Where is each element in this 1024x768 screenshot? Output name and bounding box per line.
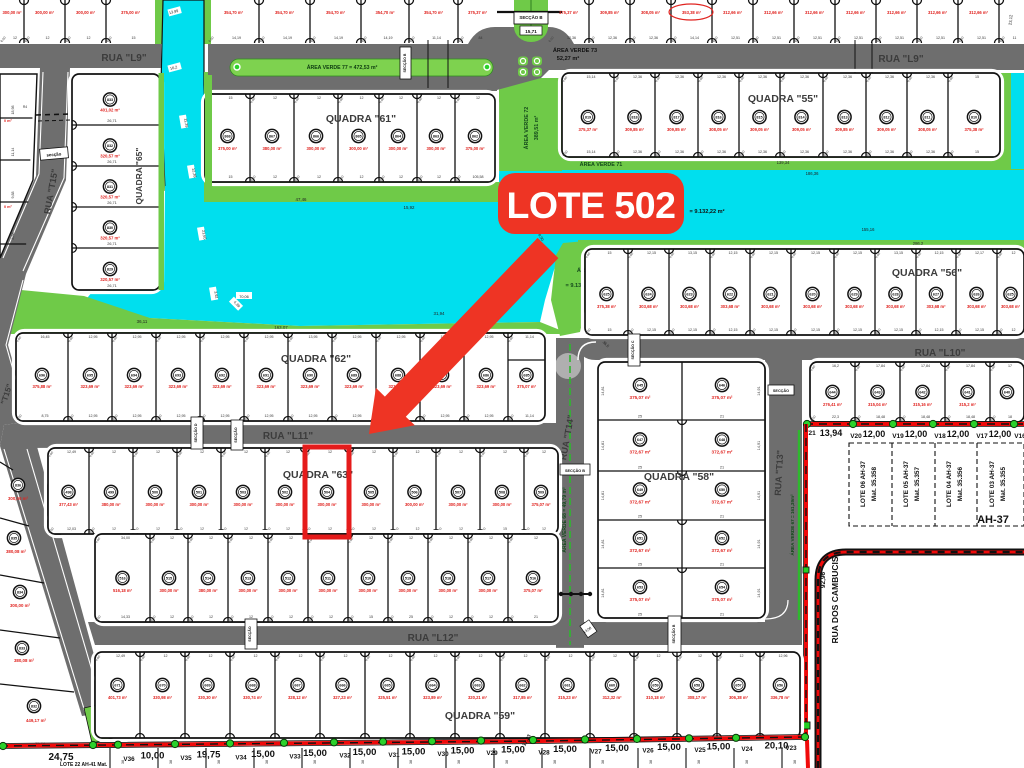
svg-text:8,75: 8,75	[42, 414, 49, 418]
svg-text:671: 671	[114, 684, 120, 688]
svg-text:SECÇÃO: SECÇÃO	[773, 388, 789, 393]
svg-text:300,00 m²: 300,00 m²	[405, 502, 425, 507]
svg-text:LOTE 03 AH-37: LOTE 03 AH-37	[989, 461, 996, 507]
svg-text:354,70 m²: 354,70 m²	[275, 10, 295, 15]
svg-text:621: 621	[767, 293, 773, 297]
svg-text:12,00: 12,00	[989, 429, 1012, 439]
svg-text:12: 12	[249, 536, 253, 540]
svg-text:36,11: 36,11	[137, 319, 148, 324]
svg-text:9,88: 9,88	[11, 192, 15, 199]
svg-text:21: 21	[720, 515, 724, 519]
svg-text:12: 12	[1012, 251, 1016, 255]
svg-text:V17: V17	[976, 433, 988, 440]
svg-text:810: 810	[971, 116, 977, 120]
svg-text:38: 38	[793, 760, 797, 764]
svg-text:14,19: 14,19	[334, 36, 343, 40]
svg-text:300,00 m²: 300,00 m²	[238, 588, 258, 593]
svg-text:836: 836	[15, 484, 21, 488]
svg-text:12: 12	[329, 615, 333, 619]
svg-text:17,84: 17,84	[966, 364, 975, 368]
svg-text:12,36: 12,36	[567, 36, 576, 40]
svg-text:18: 18	[1008, 415, 1012, 419]
svg-text:12: 12	[13, 36, 17, 40]
svg-text:309,85 m²: 309,85 m²	[835, 127, 855, 132]
svg-text:14,91: 14,91	[757, 539, 761, 549]
svg-text:12: 12	[542, 450, 546, 454]
svg-text:372,67 m²: 372,67 m²	[712, 450, 733, 455]
svg-text:507: 507	[455, 491, 461, 495]
svg-text:84: 84	[479, 36, 483, 40]
svg-text:690: 690	[307, 374, 313, 378]
svg-text:309,85 m²: 309,85 m²	[600, 10, 620, 15]
svg-text:22,3: 22,3	[832, 415, 839, 419]
svg-text:12,00: 12,00	[905, 429, 928, 439]
svg-text:868: 868	[224, 135, 230, 139]
svg-text:688: 688	[395, 374, 401, 378]
svg-text:12,95: 12,95	[133, 335, 142, 339]
svg-text:14,81: 14,81	[601, 588, 605, 598]
svg-text:12: 12	[46, 36, 50, 40]
svg-text:12,36: 12,36	[675, 150, 684, 154]
svg-text:662: 662	[519, 684, 525, 688]
svg-text:21: 21	[720, 613, 724, 617]
svg-text:502: 502	[282, 491, 288, 495]
svg-text:641: 641	[964, 391, 970, 395]
svg-text:819: 819	[585, 116, 591, 120]
svg-text:26,71: 26,71	[107, 119, 117, 123]
svg-text:670: 670	[159, 684, 165, 688]
svg-text:Mat. 35.355: Mat. 35.355	[1000, 467, 1007, 502]
svg-text:12,51: 12,51	[731, 36, 740, 40]
svg-text:831: 831	[107, 185, 113, 189]
svg-text:12,15: 12,15	[769, 251, 778, 255]
svg-text:12: 12	[289, 615, 293, 619]
svg-text:12,36: 12,36	[926, 75, 935, 79]
svg-text:12: 12	[200, 450, 204, 454]
svg-text:12,95: 12,95	[353, 414, 362, 418]
svg-text:QUADRA "65": QUADRA "65"	[134, 148, 144, 205]
svg-text:38: 38	[409, 760, 413, 764]
svg-text:12: 12	[156, 450, 160, 454]
svg-text:12,95: 12,95	[485, 335, 494, 339]
svg-text:303,68 m²: 303,68 m²	[761, 304, 781, 309]
svg-text:V18: V18	[934, 433, 946, 440]
svg-text:15,71: 15,71	[525, 29, 537, 34]
svg-text:865: 865	[355, 135, 361, 139]
svg-text:12,95: 12,95	[441, 414, 450, 418]
svg-text:300,00 m²: 300,00 m²	[388, 146, 408, 151]
svg-text:38: 38	[457, 760, 461, 764]
svg-text:449,17 m²: 449,17 m²	[26, 718, 47, 723]
svg-text:354,70 m²: 354,70 m²	[326, 10, 346, 15]
svg-text:11,14: 11,14	[525, 335, 534, 339]
svg-text:300,00 m²: 300,00 m²	[478, 588, 498, 593]
svg-text:353,38 m²: 353,38 m²	[682, 10, 702, 15]
svg-text:375,00 m²: 375,00 m²	[218, 146, 238, 151]
svg-text:12,15: 12,15	[853, 328, 862, 332]
svg-text:372,67 m²: 372,67 m²	[712, 548, 733, 553]
svg-text:389,51 m²: 389,51 m²	[534, 116, 540, 141]
svg-text:276,41 m²: 276,41 m²	[823, 402, 843, 407]
svg-text:12: 12	[209, 536, 213, 540]
svg-text:RUA "L12": RUA "L12"	[408, 633, 459, 644]
svg-text:15,00: 15,00	[707, 741, 731, 752]
svg-text:303,68 m²: 303,68 m²	[720, 304, 740, 309]
svg-text:15,00: 15,00	[402, 746, 426, 757]
svg-text:12: 12	[476, 96, 480, 100]
svg-text:323,69 m²: 323,69 m²	[300, 384, 320, 389]
svg-text:818: 818	[631, 116, 637, 120]
svg-text:380,00 m²: 380,00 m²	[101, 502, 121, 507]
svg-text:R4: R4	[23, 105, 27, 109]
svg-text:648: 648	[719, 438, 725, 442]
svg-text:12: 12	[170, 536, 174, 540]
svg-text:18,98: 18,98	[11, 106, 15, 115]
svg-text:RUA "L9": RUA "L9"	[878, 54, 923, 65]
svg-text:14,19: 14,19	[384, 36, 393, 40]
svg-text:303,68 m²: 303,68 m²	[1001, 304, 1021, 309]
svg-text:12: 12	[344, 654, 348, 658]
svg-text:300,00 m²: 300,00 m²	[2, 10, 22, 15]
svg-text:375,07 m²: 375,07 m²	[630, 597, 651, 602]
svg-text:15: 15	[369, 615, 373, 619]
svg-text:LOTE 05 AH-37: LOTE 05 AH-37	[903, 461, 910, 507]
svg-text:12: 12	[698, 654, 702, 658]
svg-text:375,07 m²: 375,07 m²	[531, 502, 551, 507]
svg-text:12: 12	[372, 450, 376, 454]
svg-text:12: 12	[299, 654, 303, 658]
svg-text:312,66 m²: 312,66 m²	[928, 10, 948, 15]
svg-text:504: 504	[324, 491, 331, 495]
svg-text:17: 17	[1008, 364, 1012, 368]
svg-text:QUADRA "61": QUADRA "61"	[326, 113, 396, 125]
svg-text:12: 12	[244, 450, 248, 454]
svg-text:12: 12	[409, 536, 413, 540]
svg-text:308,05 m²: 308,05 m²	[918, 127, 938, 132]
svg-text:320,57 m²: 320,57 m²	[100, 277, 120, 282]
svg-text:12,95: 12,95	[221, 414, 230, 418]
svg-text:624: 624	[645, 293, 652, 297]
svg-text:663: 663	[474, 684, 480, 688]
svg-text:V33: V33	[289, 753, 301, 760]
svg-text:SECÇÃO D: SECÇÃO D	[193, 423, 198, 442]
svg-text:21: 21	[534, 615, 538, 619]
svg-text:38: 38	[505, 760, 509, 764]
svg-text:323,69 m²: 323,69 m²	[168, 384, 188, 389]
svg-text:12: 12	[112, 450, 116, 454]
svg-text:15: 15	[608, 328, 612, 332]
svg-text:RUA "L10": RUA "L10"	[915, 348, 966, 359]
svg-text:12: 12	[534, 536, 538, 540]
svg-text:654: 654	[719, 586, 726, 590]
svg-text:315,2 m²: 315,2 m²	[959, 402, 976, 407]
svg-text:300,00 m²: 300,00 m²	[35, 10, 55, 15]
svg-text:0 m²: 0 m²	[4, 205, 13, 209]
svg-text:863: 863	[433, 135, 439, 139]
svg-text:14,91: 14,91	[757, 491, 761, 501]
svg-text:315,23 m²: 315,23 m²	[558, 695, 578, 700]
svg-text:516: 516	[119, 577, 125, 581]
svg-text:12: 12	[273, 96, 277, 100]
svg-text:V20: V20	[850, 433, 862, 440]
svg-text:13,95: 13,95	[309, 335, 318, 339]
svg-text:12,36: 12,36	[885, 150, 894, 154]
svg-text:26,71: 26,71	[107, 242, 117, 246]
svg-text:38: 38	[697, 760, 701, 764]
svg-text:15,14: 15,14	[587, 75, 596, 79]
svg-text:508: 508	[499, 491, 505, 495]
svg-text:14,81: 14,81	[601, 491, 605, 501]
svg-text:665: 665	[384, 684, 390, 688]
svg-text:38: 38	[649, 760, 653, 764]
svg-text:105,58: 105,58	[473, 175, 484, 179]
svg-text:V27: V27	[590, 749, 602, 756]
svg-text:657: 657	[735, 684, 741, 688]
svg-text:300,00 m²: 300,00 m²	[76, 10, 96, 15]
svg-text:V32: V32	[339, 753, 351, 760]
svg-text:12: 12	[249, 615, 253, 619]
svg-text:12: 12	[273, 175, 277, 179]
svg-text:12,15: 12,15	[647, 328, 656, 332]
svg-text:12,49: 12,49	[67, 450, 76, 454]
svg-text:12: 12	[317, 96, 321, 100]
svg-text:12,36: 12,36	[649, 36, 658, 40]
svg-text:155,16: 155,16	[862, 227, 875, 232]
svg-text:832: 832	[31, 705, 37, 709]
svg-text:649: 649	[637, 488, 643, 492]
svg-text:12,15: 12,15	[935, 328, 944, 332]
svg-text:12,15: 12,15	[811, 251, 820, 255]
svg-text:QUADRA "62": QUADRA "62"	[281, 353, 351, 365]
svg-text:SECÇÃO B: SECÇÃO B	[519, 15, 542, 20]
svg-text:12: 12	[459, 450, 463, 454]
svg-text:372,67 m²: 372,67 m²	[630, 500, 651, 505]
svg-text:320,57 m²: 320,57 m²	[100, 154, 120, 159]
svg-text:11,14: 11,14	[432, 36, 441, 40]
svg-text:18,48: 18,48	[966, 415, 975, 419]
svg-text:300,00 m²: 300,00 m²	[278, 588, 298, 593]
svg-text:ÁREA VERDE 67 = 161,39m²: ÁREA VERDE 67 = 161,39m²	[789, 494, 795, 556]
svg-text:375,00 m²: 375,00 m²	[121, 10, 141, 15]
svg-text:12,15: 12,15	[975, 328, 984, 332]
svg-text:V34: V34	[235, 754, 247, 761]
svg-text:320,57 m²: 320,57 m²	[100, 236, 120, 241]
svg-text:11,14: 11,14	[525, 414, 534, 418]
svg-text:15,00: 15,00	[657, 742, 681, 753]
svg-text:12: 12	[569, 654, 573, 658]
svg-text:815: 815	[756, 116, 762, 120]
svg-text:646: 646	[719, 384, 725, 388]
svg-text:669: 669	[204, 684, 210, 688]
svg-text:12,95: 12,95	[265, 414, 274, 418]
svg-text:12,00: 12,00	[947, 429, 970, 439]
svg-text:12: 12	[479, 654, 483, 658]
svg-text:12,51: 12,51	[772, 36, 781, 40]
svg-text:12: 12	[317, 175, 321, 179]
svg-text:686: 686	[483, 374, 489, 378]
svg-text:505: 505	[368, 491, 374, 495]
svg-text:300,00 m²: 300,00 m²	[159, 588, 179, 593]
svg-text:375,07 m²: 375,07 m²	[630, 395, 651, 400]
svg-text:V31: V31	[388, 752, 400, 759]
svg-text:620: 620	[809, 293, 815, 297]
svg-text:689: 689	[351, 374, 357, 378]
svg-text:16,45: 16,45	[41, 335, 50, 339]
svg-text:25: 25	[638, 515, 642, 519]
svg-text:300,00 m²: 300,00 m²	[318, 588, 338, 593]
svg-text:26,71: 26,71	[107, 160, 117, 164]
svg-text:12: 12	[328, 450, 332, 454]
svg-text:20,10: 20,10	[765, 740, 789, 751]
svg-text:308,17 m²: 308,17 m²	[687, 695, 707, 700]
svg-text:16,2: 16,2	[832, 364, 839, 368]
svg-text:691: 691	[263, 374, 269, 378]
svg-text:26,71: 26,71	[107, 201, 117, 205]
svg-text:300,00 m²: 300,00 m²	[145, 502, 165, 507]
svg-text:SECÇÃO B: SECÇÃO B	[402, 53, 407, 72]
svg-text:645: 645	[637, 384, 643, 388]
svg-text:372,67 m²: 372,67 m²	[712, 500, 733, 505]
svg-text:13,94: 13,94	[820, 428, 843, 438]
svg-text:685: 685	[523, 374, 529, 378]
svg-text:LOTE 22 AH-41 Mat.: LOTE 22 AH-41 Mat.	[60, 762, 108, 768]
svg-text:12,36: 12,36	[843, 75, 852, 79]
svg-text:15: 15	[975, 75, 979, 79]
svg-text:513: 513	[245, 577, 251, 581]
svg-text:12: 12	[524, 654, 528, 658]
svg-text:312,66 m²: 312,66 m²	[969, 10, 989, 15]
svg-text:12: 12	[437, 96, 441, 100]
svg-text:QUADRA "58": QUADRA "58"	[644, 471, 714, 483]
svg-text:AH-37: AH-37	[977, 514, 1009, 526]
svg-text:660: 660	[609, 684, 615, 688]
svg-text:509: 509	[538, 491, 544, 495]
svg-text:519: 519	[405, 577, 411, 581]
svg-text:315,16 m²: 315,16 m²	[913, 402, 933, 407]
svg-text:498: 498	[65, 491, 71, 495]
svg-text:= 9.132,22 m²: = 9.132,22 m²	[690, 208, 725, 215]
svg-text:12: 12	[164, 654, 168, 658]
svg-text:667: 667	[294, 684, 300, 688]
svg-text:375,07 m²: 375,07 m²	[712, 395, 733, 400]
svg-text:12,15: 12,15	[853, 251, 862, 255]
svg-text:658: 658	[694, 684, 700, 688]
svg-text:13,15: 13,15	[688, 251, 697, 255]
svg-text:18,48: 18,48	[876, 415, 885, 419]
svg-text:LOTE 04 AH-37: LOTE 04 AH-37	[946, 461, 953, 507]
svg-text:RUA "L11": RUA "L11"	[263, 431, 313, 442]
svg-text:12: 12	[289, 536, 293, 540]
svg-text:336,78 m²: 336,78 m²	[770, 695, 790, 700]
svg-text:15: 15	[229, 175, 233, 179]
svg-text:320,21 m²: 320,21 m²	[468, 695, 488, 700]
svg-text:622: 622	[727, 293, 733, 297]
svg-text:330,74 m²: 330,74 m²	[243, 695, 263, 700]
svg-text:511: 511	[325, 577, 331, 581]
svg-text:QUADRA "56": QUADRA "56"	[892, 267, 962, 279]
svg-text:12: 12	[613, 654, 617, 658]
svg-text:623: 623	[686, 293, 692, 297]
svg-text:668: 668	[249, 684, 255, 688]
svg-text:17,84: 17,84	[876, 364, 885, 368]
svg-text:12: 12	[503, 450, 507, 454]
svg-text:626: 626	[973, 293, 979, 297]
svg-text:12: 12	[657, 654, 661, 658]
svg-text:300,00 m²: 300,00 m²	[233, 502, 253, 507]
svg-text:12,36: 12,36	[843, 150, 852, 154]
svg-text:Mat. 35.357: Mat. 35.357	[914, 467, 921, 502]
svg-text:V26: V26	[642, 748, 654, 755]
svg-text:834: 834	[17, 591, 24, 595]
svg-text:695: 695	[87, 374, 93, 378]
svg-text:12,15: 12,15	[729, 328, 738, 332]
svg-text:814: 814	[798, 116, 805, 120]
svg-text:12: 12	[399, 96, 403, 100]
svg-text:506: 506	[411, 491, 417, 495]
svg-text:312,32 m²: 312,32 m²	[602, 695, 622, 700]
svg-text:312,66 m²: 312,66 m²	[887, 10, 907, 15]
svg-text:512: 512	[285, 577, 291, 581]
svg-text:864: 864	[395, 135, 402, 139]
svg-text:303,68 m²: 303,68 m²	[886, 304, 906, 309]
svg-text:12,15: 12,15	[688, 328, 697, 332]
svg-text:309,85 m²: 309,85 m²	[667, 127, 687, 132]
svg-text:LOTE 502: LOTE 502	[507, 184, 676, 226]
svg-text:12,36: 12,36	[885, 75, 894, 79]
svg-text:14,19: 14,19	[283, 36, 292, 40]
svg-text:V36: V36	[123, 756, 135, 763]
svg-text:15: 15	[975, 150, 979, 154]
svg-text:300,00 m²: 300,00 m²	[358, 588, 378, 593]
svg-text:328,12 m²: 328,12 m²	[288, 695, 308, 700]
svg-text:ÁREA VERDE 72: ÁREA VERDE 72	[523, 107, 530, 150]
svg-text:323,69 m²: 323,69 m²	[256, 384, 276, 389]
svg-text:650: 650	[719, 488, 725, 492]
svg-text:309,05 m²: 309,05 m²	[877, 127, 897, 132]
svg-text:12,95: 12,95	[397, 335, 406, 339]
svg-text:320,57 m²: 320,57 m²	[100, 195, 120, 200]
svg-text:12: 12	[416, 450, 420, 454]
svg-text:QUADRA "59": QUADRA "59"	[445, 710, 515, 722]
svg-text:12,95: 12,95	[177, 335, 186, 339]
svg-text:323,69 m²: 323,69 m²	[344, 384, 364, 389]
svg-text:833: 833	[19, 647, 25, 651]
svg-text:12,36: 12,36	[608, 36, 617, 40]
svg-text:52,27 m²: 52,27 m²	[557, 55, 580, 62]
svg-text:380,00 m²: 380,00 m²	[198, 588, 218, 593]
svg-text:829: 829	[107, 268, 113, 272]
svg-text:401,73 m²: 401,73 m²	[108, 695, 128, 700]
svg-text:644: 644	[829, 391, 836, 395]
svg-text:323,69 m²: 323,69 m²	[212, 384, 232, 389]
svg-text:12,15: 12,15	[811, 328, 820, 332]
svg-text:303,68 m²: 303,68 m²	[680, 304, 700, 309]
svg-text:14,14: 14,14	[690, 36, 699, 40]
svg-text:303,68 m²: 303,68 m²	[967, 304, 987, 309]
svg-text:8,88: 8,88	[11, 233, 15, 240]
svg-text:15,92: 15,92	[404, 205, 416, 210]
svg-text:811: 811	[924, 116, 930, 120]
svg-text:12: 12	[434, 654, 438, 658]
svg-text:12,15: 12,15	[935, 251, 944, 255]
svg-text:14,91: 14,91	[757, 588, 761, 598]
svg-text:372,67 m²: 372,67 m²	[630, 450, 651, 455]
svg-text:12,95: 12,95	[177, 414, 186, 418]
svg-text:12,49: 12,49	[116, 654, 125, 658]
svg-text:862: 862	[472, 135, 478, 139]
svg-text:375,38 m²: 375,38 m²	[964, 127, 984, 132]
svg-text:15,00: 15,00	[605, 743, 629, 754]
